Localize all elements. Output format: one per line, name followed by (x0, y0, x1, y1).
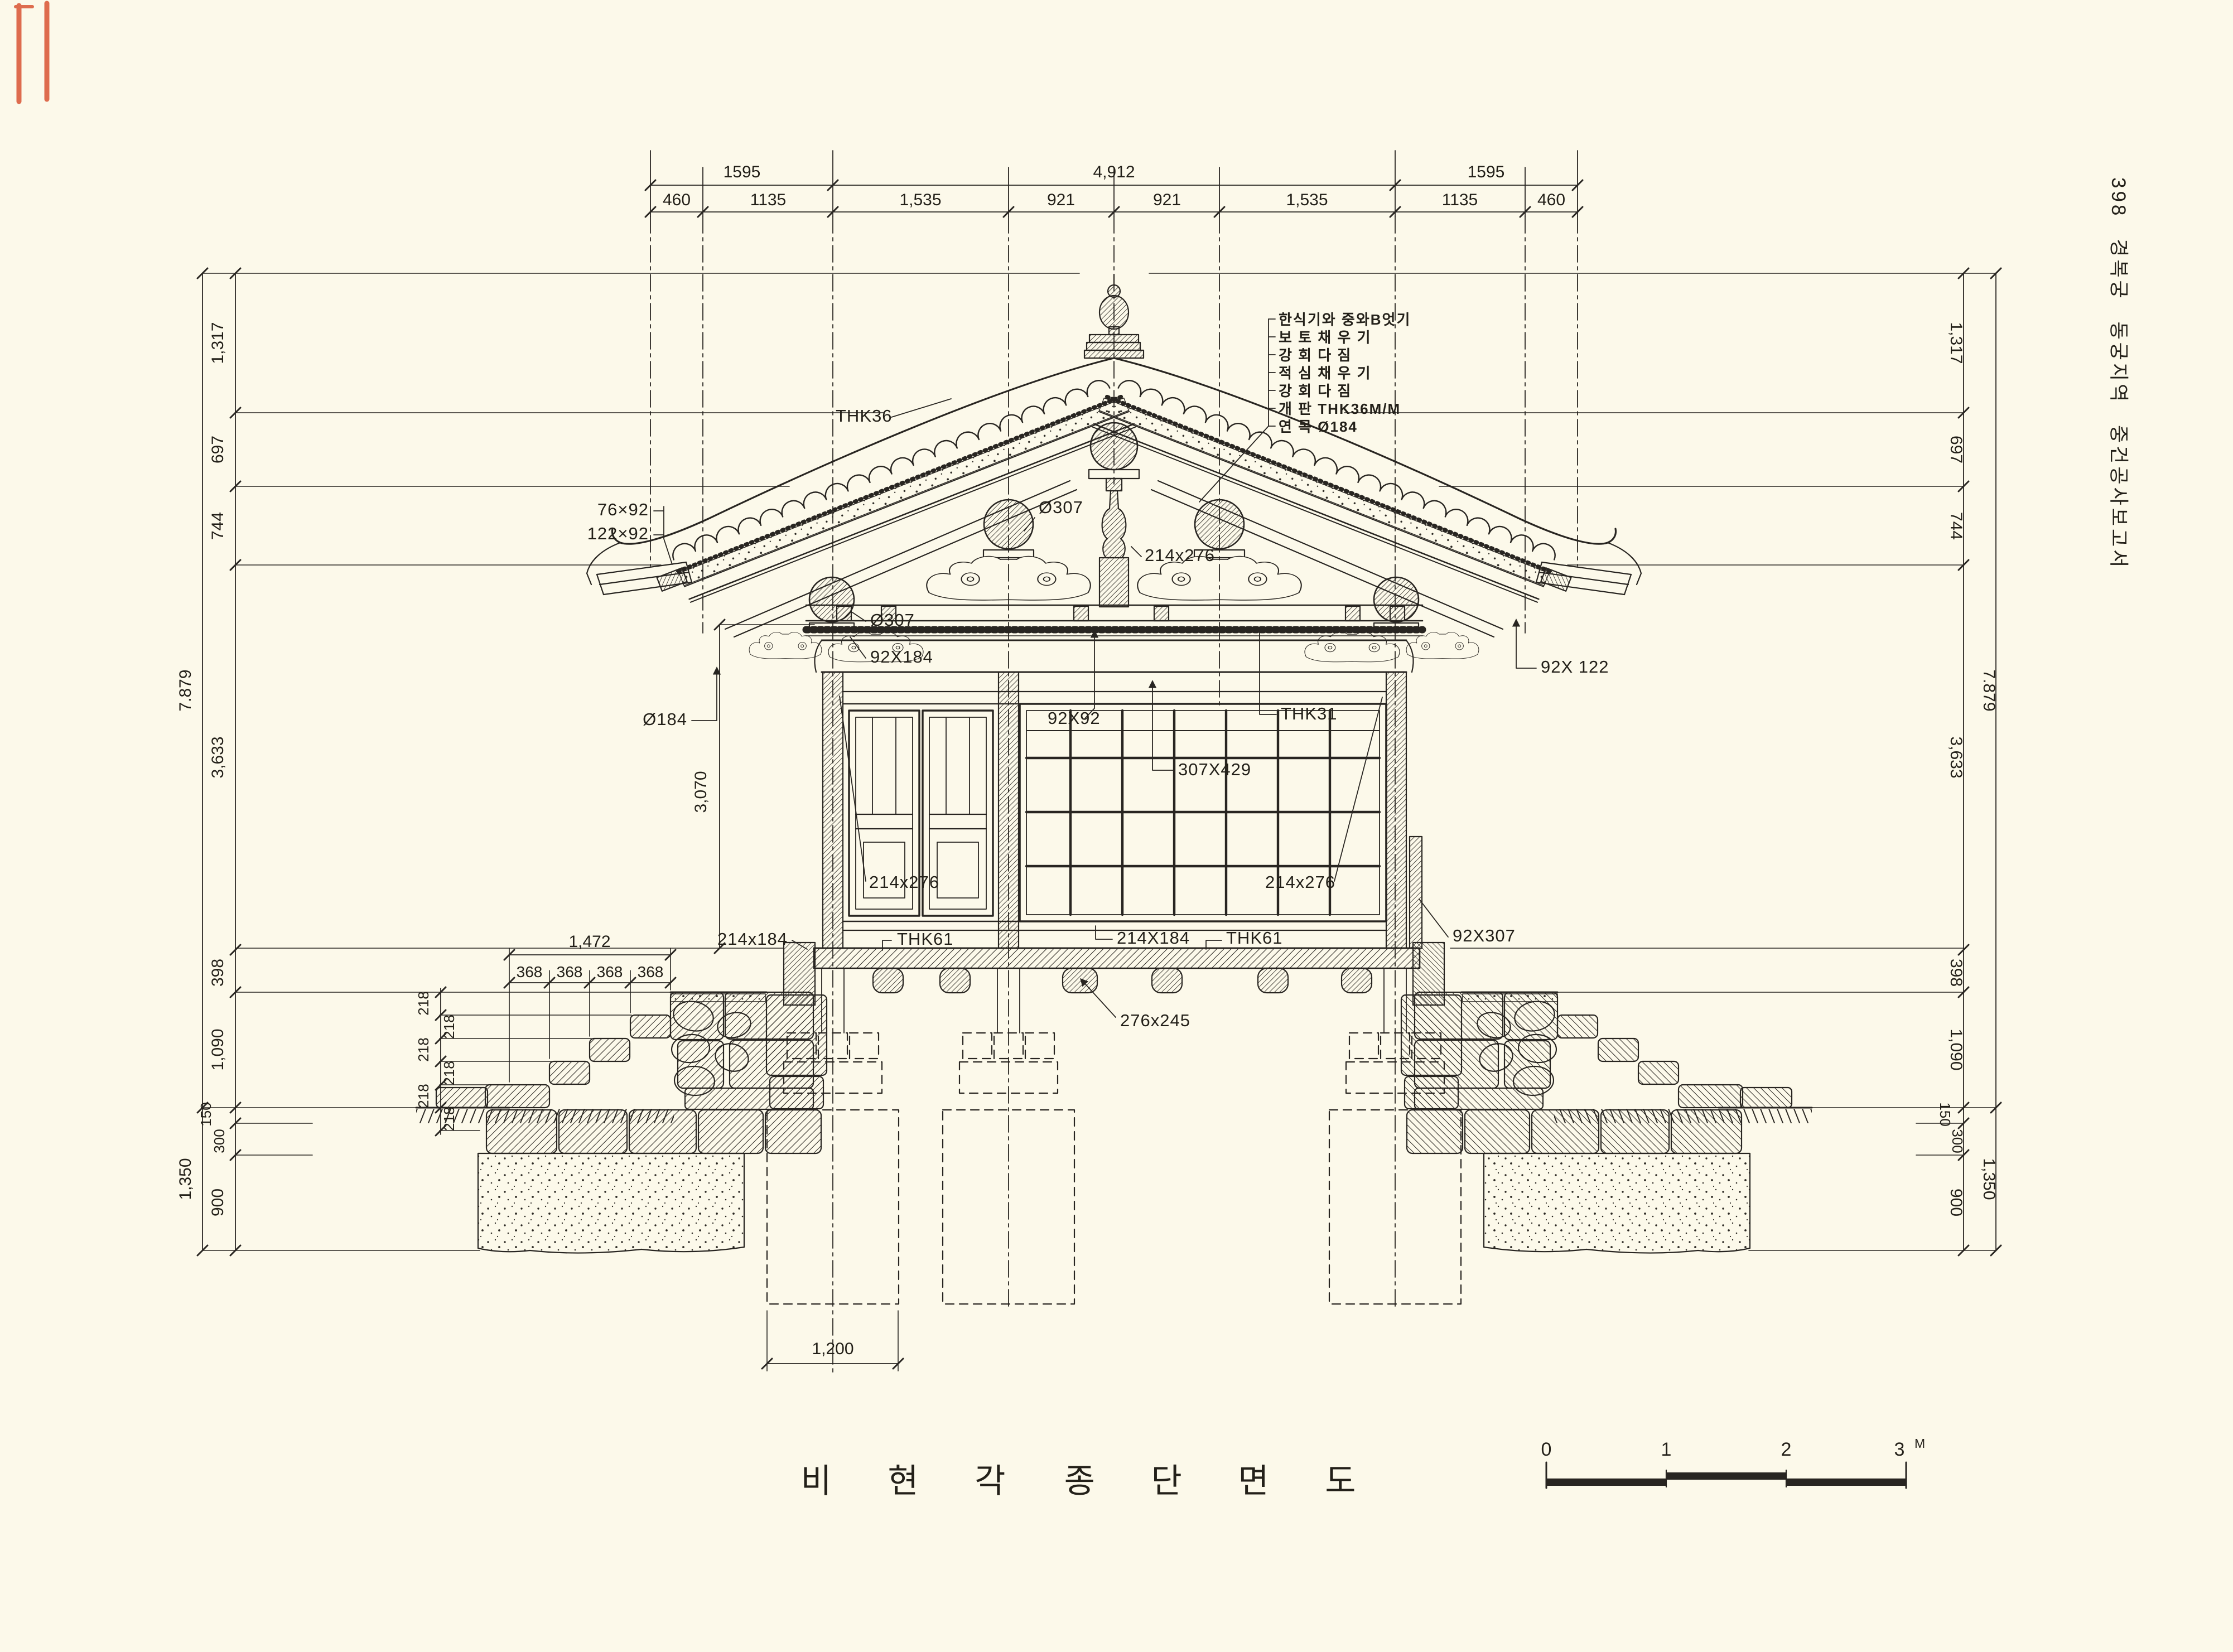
transom (843, 692, 1386, 704)
label-dia307-ridge: Ø307 (1039, 497, 1083, 517)
page-side-caption: 398 경복궁 동궁지역 중건공사보고서 (2107, 177, 2129, 570)
dim-top: 1,535 (899, 191, 941, 209)
label-rafter-b: 122×92 (587, 524, 649, 543)
annotation-item: 한식기와 중와B엇기 (1279, 311, 1411, 328)
label-thk36: THK36 (836, 406, 892, 426)
dim-top: 460 (1537, 191, 1565, 209)
dim-top: 1595 (1468, 163, 1505, 181)
annotation-item: 보 토 채 우 기 (1279, 329, 1372, 346)
texts: 1595 4,912 1595 460 1135 1,535 921 921 1… (176, 163, 2129, 1500)
dim-left: 3,633 (209, 736, 227, 778)
dim-riser: 218 (441, 1015, 457, 1038)
dim-right: 398 (1947, 959, 1965, 987)
dim-right-outer: 7.879 (1980, 669, 1998, 711)
dim-right: 900 (1947, 1189, 1965, 1216)
dim-right-outer: 1,350 (1980, 1158, 1998, 1200)
dim-top: 1135 (1442, 191, 1478, 209)
section-drawing: 1595 4,912 1595 460 1135 1,535 921 921 1… (0, 0, 2233, 1652)
drawing-sheet: 1595 4,912 1595 460 1135 1,535 921 921 1… (0, 0, 2233, 1652)
label-bracket-right: 214x276 (1265, 872, 1335, 892)
scale-tick: 2 (1781, 1439, 1792, 1460)
dim-riser: 218 (441, 1107, 457, 1131)
dim-tread: 368 (597, 963, 623, 980)
dim-right: 300 (1949, 1129, 1966, 1153)
dim-top: 921 (1047, 191, 1075, 209)
dim-left: 900 (209, 1189, 227, 1216)
dim-column-height: 3,070 (692, 771, 710, 813)
label-eave-92x122: 92X 122 (1541, 657, 1609, 677)
scale-tick: 1 (1661, 1439, 1672, 1460)
dim-left-outer: 1,350 (176, 1158, 195, 1200)
label-dia184: Ø184 (643, 709, 687, 729)
label-rafter-a: 76×92 (597, 500, 649, 519)
drawing-title-building: 비 현 각 (801, 1462, 1029, 1500)
dim-footing-width: 1,200 (812, 1340, 853, 1358)
label-276x245: 276x245 (1120, 1011, 1190, 1030)
dim-right: 744 (1947, 512, 1965, 540)
label-dia307-purlin: Ø307 (870, 610, 915, 630)
scale-unit: M (1914, 1436, 1925, 1451)
label-thk61-left: THK61 (897, 929, 953, 949)
centerlines (650, 216, 1578, 1372)
dim-left: 398 (209, 959, 227, 987)
dim-right: 1,317 (1947, 322, 1965, 364)
scale-tick: 3 (1894, 1439, 1905, 1460)
dim-right: 150 (1937, 1102, 1954, 1126)
dim-riser: 218 (415, 991, 432, 1015)
dim-riser: 218 (441, 1061, 457, 1085)
dim-right: 697 (1947, 436, 1965, 463)
annotation-item: 연 목 Ø184 (1279, 418, 1358, 435)
dim-stair-total: 1,472 (568, 933, 610, 951)
annotation-item: 개 판 THK36M/M (1279, 400, 1401, 417)
label-beam-307x429: 307X429 (1178, 760, 1251, 779)
dim-left: 744 (209, 512, 227, 540)
label-sill-right: 214X184 (1117, 928, 1190, 948)
annotation-item: 적 심 채 우 기 (1279, 365, 1372, 381)
dim-left-outer: 7.879 (176, 669, 195, 711)
dim-tread: 368 (557, 963, 583, 980)
dim-top: 921 (1153, 191, 1181, 209)
dim-tread: 368 (638, 963, 664, 980)
dim-top: 4,912 (1093, 163, 1135, 181)
annotation-item: 강 회 다 짐 (1279, 383, 1352, 399)
dim-top: 1135 (750, 191, 787, 209)
dim-top: 1,535 (1286, 191, 1328, 209)
label-sill-left: 214x184 (717, 929, 788, 949)
red-margin-mark (16, 3, 47, 102)
drawing-title-type: 종 단 면 도 (1064, 1462, 1380, 1500)
dim-top: 460 (663, 191, 691, 209)
label-thk31: THK31 (1281, 704, 1337, 723)
label-kingpost: 214x276 (1145, 545, 1215, 565)
dim-top: 1595 (724, 163, 761, 181)
dim-left: 1,317 (209, 322, 227, 364)
dim-left: 1,090 (209, 1028, 227, 1070)
scale-tick: 0 (1541, 1439, 1552, 1460)
label-thk61-right: THK61 (1226, 928, 1282, 948)
label-bracket-left: 214x276 (869, 872, 939, 892)
dim-tread: 368 (517, 963, 543, 980)
dim-riser: 218 (415, 1084, 432, 1108)
dim-left: 697 (209, 436, 227, 463)
label-92x307: 92X307 (1453, 926, 1516, 945)
dim-left: 300 (211, 1129, 228, 1153)
dim-riser: 218 (415, 1037, 432, 1061)
dim-left: 150 (197, 1102, 214, 1126)
scale-bar (1546, 1462, 1906, 1488)
label-soro-92x92: 92X92 (1048, 708, 1101, 728)
label-plate-92x184: 92X184 (870, 647, 933, 666)
dim-right: 1,090 (1947, 1028, 1965, 1070)
dim-right: 3,633 (1947, 736, 1965, 778)
annotation-item: 강 회 다 짐 (1279, 347, 1352, 364)
